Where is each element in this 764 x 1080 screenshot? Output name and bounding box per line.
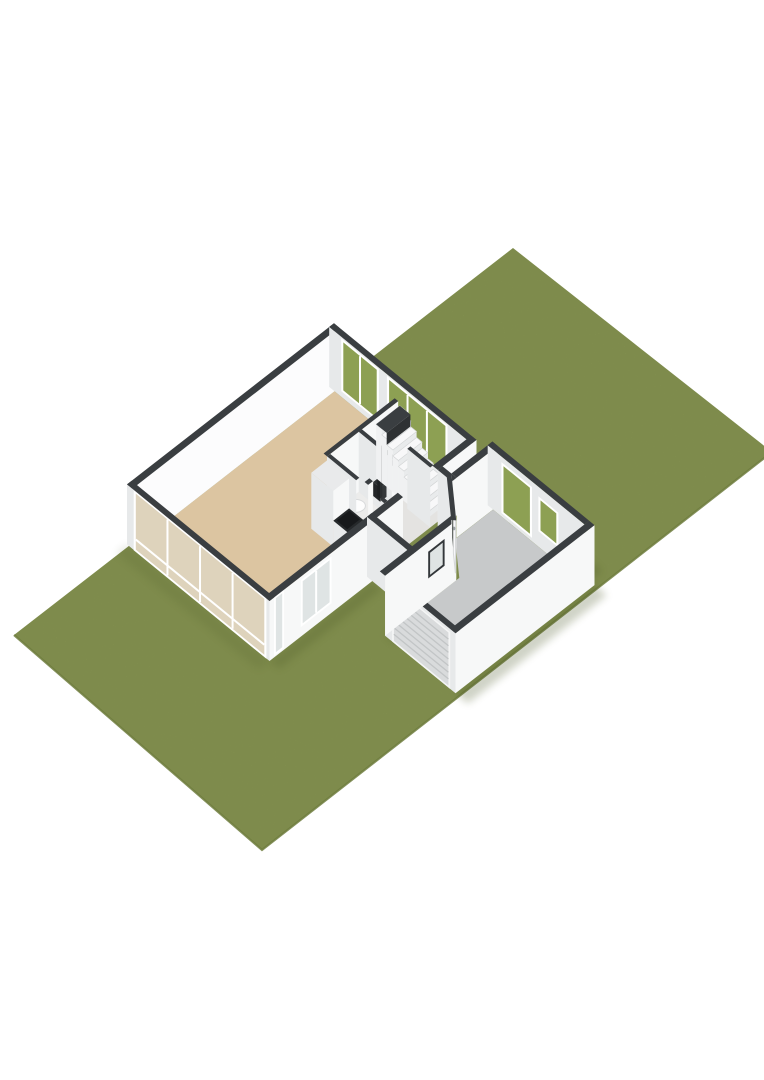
step-8-side <box>376 424 382 483</box>
step-5-side <box>393 456 399 497</box>
living-front-wall-window-0-glass <box>276 593 282 652</box>
step-7-side <box>382 435 388 488</box>
step-6-side <box>387 445 393 492</box>
floorplan-3d-render <box>0 0 764 1080</box>
floorplan-viewport[interactable] <box>0 0 764 1080</box>
